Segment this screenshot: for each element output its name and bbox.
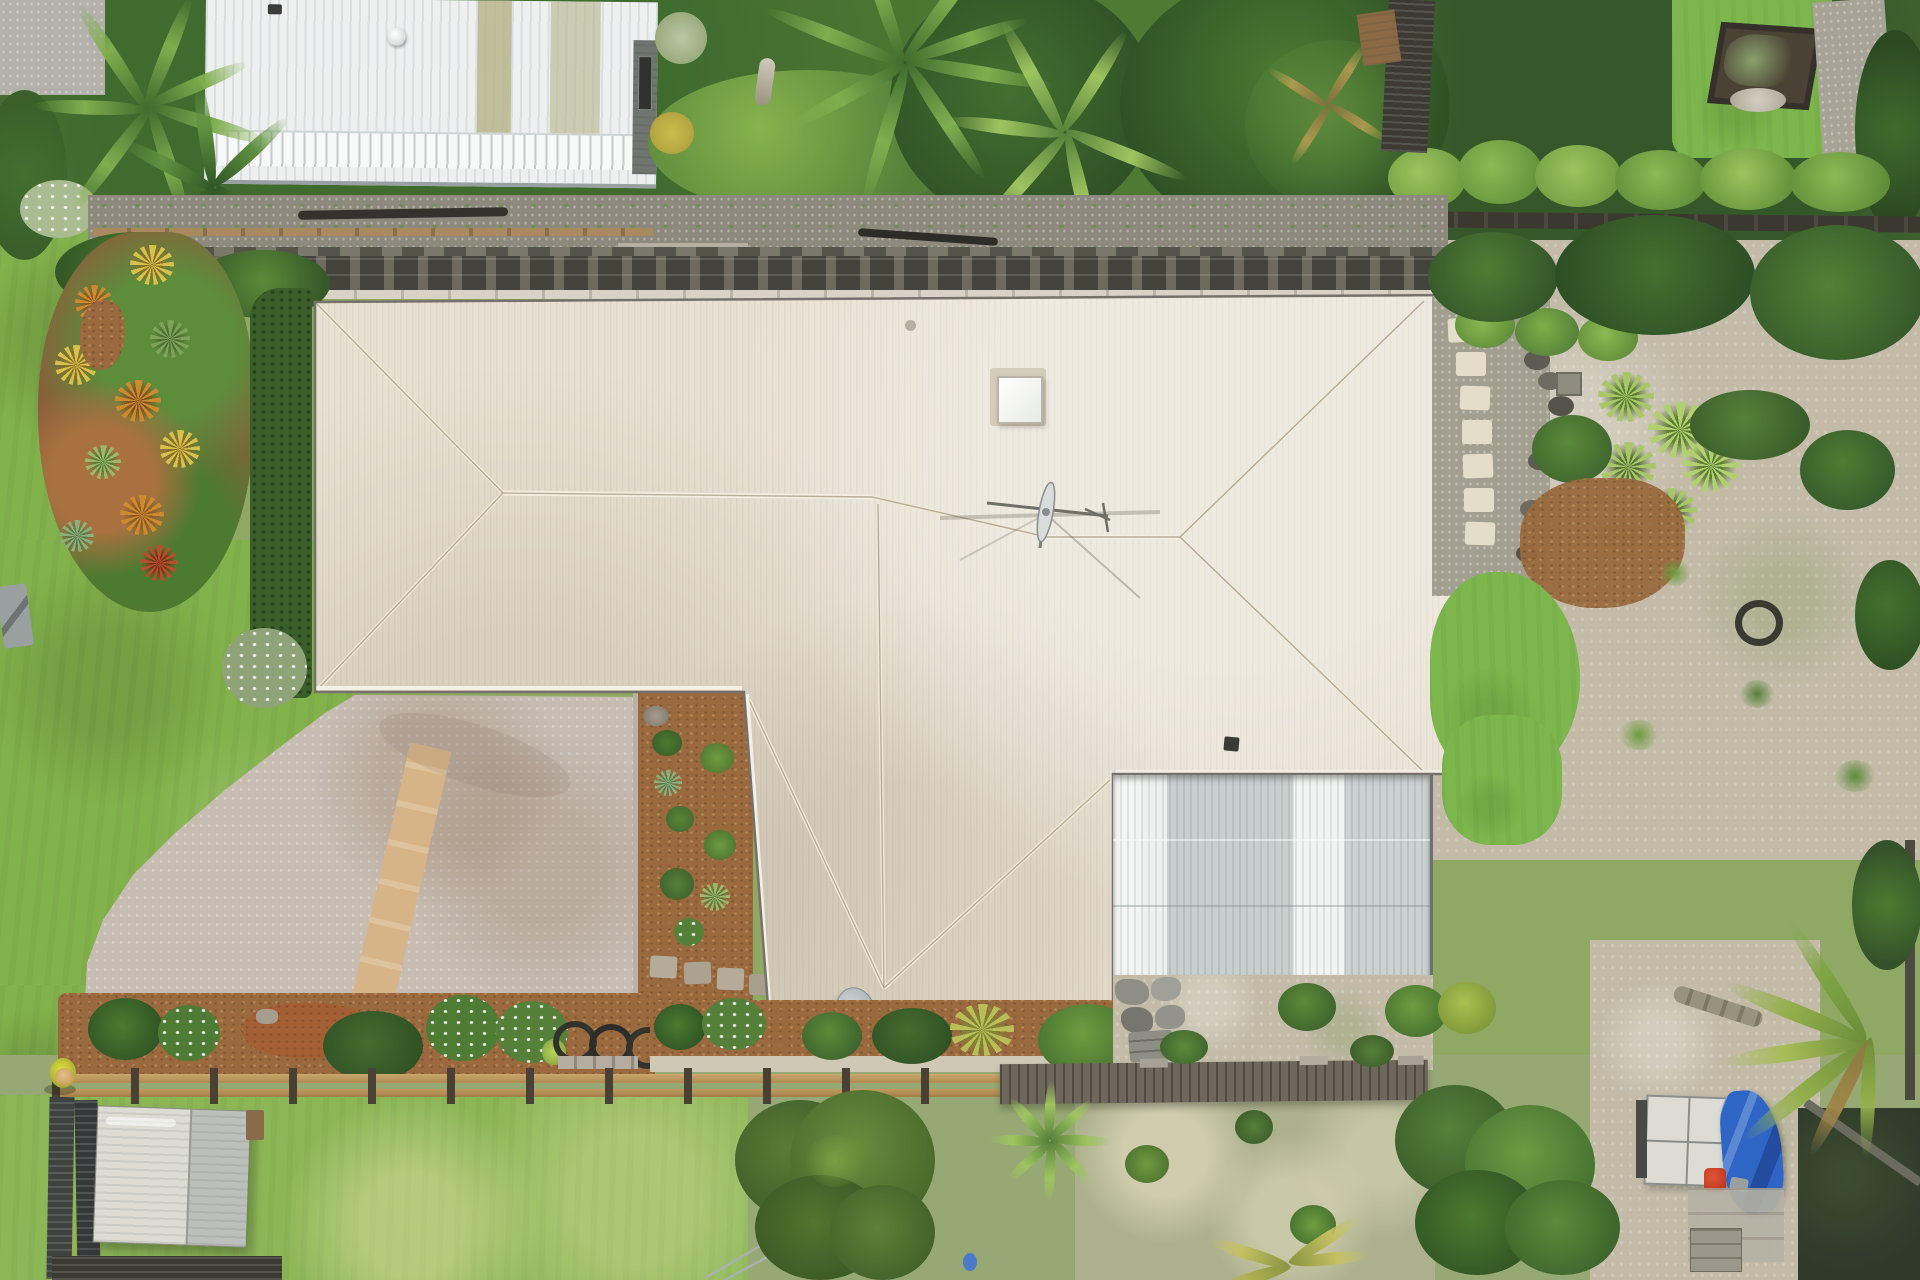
besser-block xyxy=(1556,372,1582,396)
front-shrub-mid xyxy=(802,1012,862,1060)
hedge-row-5 xyxy=(1700,148,1796,210)
side-paver-5 xyxy=(1463,453,1494,478)
old-timber-fence xyxy=(1000,1060,1428,1104)
bromeliad-7 xyxy=(85,445,121,479)
shed-roof-left xyxy=(94,1106,191,1244)
bromeliad-3 xyxy=(150,320,190,358)
house-front-bed xyxy=(650,1000,1115,1072)
yellow-bush-right xyxy=(1438,982,1496,1034)
scrub-weed-2 xyxy=(1235,1110,1273,1144)
silver-groundcover xyxy=(222,628,307,708)
shrub-silver-bush xyxy=(655,12,707,64)
bottom-fence-dark xyxy=(52,1256,282,1280)
garage-panel-seam xyxy=(1113,839,1430,841)
dirt-shrub-1 xyxy=(1800,430,1895,510)
garage-roof xyxy=(1113,775,1433,980)
agapanthus-2 xyxy=(426,995,500,1061)
shed-roof-right xyxy=(186,1110,251,1247)
side-mulch-bed xyxy=(1520,478,1685,608)
worker-hat xyxy=(55,1068,74,1086)
big-tree-bottom xyxy=(735,1090,935,1280)
rock-border-3 xyxy=(1548,396,1574,416)
front-flax xyxy=(654,1004,706,1050)
hedge-row-3 xyxy=(1535,145,1621,207)
neighbor-roof-stripe2 xyxy=(549,1,601,147)
side-paver-6 xyxy=(1464,488,1494,512)
flagstone-3 xyxy=(1121,1007,1153,1033)
side-paver-4 xyxy=(1462,420,1492,444)
garage-south-shrub-2 xyxy=(1350,1035,1394,1067)
timber-shed xyxy=(93,1105,250,1247)
tiny-blue-item xyxy=(963,1253,977,1271)
roof-vent-dark xyxy=(1223,736,1239,751)
side-paver-7 xyxy=(1465,521,1496,545)
gate-panel-1 xyxy=(46,1097,74,1279)
bromeliad-1 xyxy=(130,245,174,285)
neighbor-window xyxy=(638,56,653,110)
side-paver-3 xyxy=(1460,385,1491,410)
timber-ramp xyxy=(1357,10,1402,67)
hedge-row-6 xyxy=(1790,152,1890,212)
bottom-right-bushes xyxy=(1395,1085,1630,1280)
shed-side-box xyxy=(246,1110,264,1140)
corner-tree-ne xyxy=(1555,215,1755,335)
tv-antenna xyxy=(930,440,1190,610)
planter-plants xyxy=(1720,32,1799,88)
bed-stone xyxy=(256,1009,278,1024)
side-paver-2 xyxy=(1456,352,1486,376)
block-stack xyxy=(1690,1228,1742,1272)
gravel-strip xyxy=(88,195,1448,253)
gravel-weeds xyxy=(88,195,1448,253)
old-fence-crossbar-3 xyxy=(1398,1056,1424,1065)
neighbor-roof-stripe xyxy=(477,0,512,140)
neighbor-shed-roof xyxy=(204,0,658,188)
yucca-1 xyxy=(1598,372,1654,422)
dirt-weed-4 xyxy=(1835,760,1875,792)
dirt-weed-2 xyxy=(1740,680,1774,708)
garage-panel-seam2 xyxy=(1113,905,1430,907)
front-spiky-yellow xyxy=(950,1004,1014,1056)
bromeliad-8 xyxy=(120,495,164,535)
old-fence-crossbar-1 xyxy=(1140,1058,1168,1067)
dirt-weed-3 xyxy=(1620,720,1658,750)
planter-gravel-pile xyxy=(1730,88,1786,112)
front-agapanthus xyxy=(702,998,766,1050)
worker-person xyxy=(44,1046,84,1098)
dirt-tire xyxy=(1735,600,1783,646)
dirt-shrub-2 xyxy=(1690,390,1810,460)
garage-south-shrub-1 xyxy=(1160,1030,1208,1064)
hedge-row-4 xyxy=(1615,150,1707,210)
driveway-garden-bed xyxy=(58,993,655,1075)
forecourt-shrub-1 xyxy=(1278,983,1336,1031)
bromeliad-5 xyxy=(115,380,161,422)
small-shed-opening xyxy=(1636,1100,1647,1178)
skylight xyxy=(997,376,1043,424)
corner-shrubs-ne xyxy=(1428,232,1558,322)
bromeliad-6 xyxy=(160,430,200,468)
flagstone-1 xyxy=(1115,979,1149,1005)
agapanthus-1 xyxy=(158,1005,220,1061)
hedge-row-2 xyxy=(1458,140,1542,204)
path-shrub-mound xyxy=(1532,415,1612,483)
neighbor-roof-dark-vent xyxy=(268,4,282,14)
bromeliad-red xyxy=(140,545,178,581)
corner-tree-ne2 xyxy=(1750,225,1920,360)
dirt-shrub-3 xyxy=(1855,560,1920,670)
flagstone-2 xyxy=(1151,977,1181,1001)
side-lawn-tongue xyxy=(1442,715,1562,845)
aerial-photo-stage xyxy=(0,0,1920,1280)
right-edge-bush xyxy=(1852,840,1920,970)
scrub-weed-1 xyxy=(1125,1145,1169,1183)
flax-clump-1 xyxy=(88,998,163,1060)
flagstone-4 xyxy=(1155,1005,1185,1029)
neighbor-roof-vent-dome xyxy=(387,28,405,46)
old-fence-crossbar-2 xyxy=(1300,1056,1328,1065)
bromeliad-9 xyxy=(60,520,94,552)
shrub-yellow-accent xyxy=(650,112,694,154)
dirt-weed-1 xyxy=(1660,560,1690,586)
front-shrub-dark xyxy=(872,1008,952,1064)
roof-vent-small xyxy=(905,320,916,331)
